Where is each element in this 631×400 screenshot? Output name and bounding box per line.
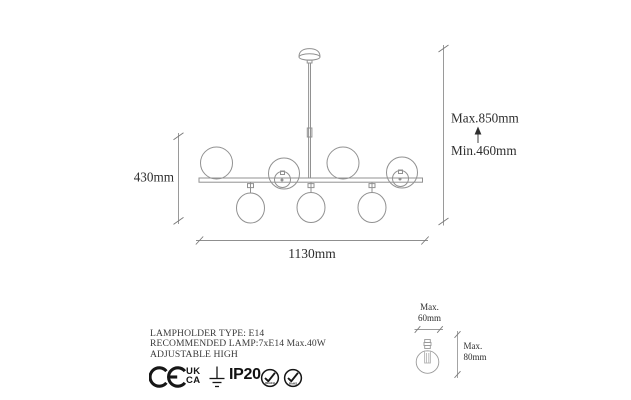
bulb-width-value: 60mm bbox=[418, 313, 441, 323]
ce-mark-icon bbox=[149, 364, 187, 390]
spec-value: 7xE14 Max.40W bbox=[259, 338, 326, 349]
globe-top-4 bbox=[387, 157, 418, 188]
suspension-rod bbox=[307, 63, 312, 178]
dimension-annotations: 430mm Max.850mm Min.460mm 1130mm bbox=[134, 45, 520, 261]
dim-hanging-height: Max.850mm Min.460mm bbox=[439, 45, 520, 226]
spec-text-block: LAMPHOLDER TYPE: E14 RECOMMENDED LAMP:7x… bbox=[150, 329, 326, 360]
dim-width-label: 1130mm bbox=[288, 246, 336, 261]
globe-top-2 bbox=[269, 158, 300, 189]
ukca-mark-icon: UK CA bbox=[186, 367, 201, 385]
globe-bottom-2 bbox=[297, 182, 325, 222]
dim-min-label: Min.460mm bbox=[451, 143, 517, 158]
rohs-badge-label: RoHS bbox=[289, 381, 297, 385]
bulb-height-value: 80mm bbox=[464, 352, 487, 362]
dim-height-label: 430mm bbox=[134, 170, 175, 185]
bulb-height-dim-line bbox=[455, 331, 461, 378]
reach-badge-icon: REACH bbox=[260, 368, 280, 388]
ukca-bottom: CA bbox=[186, 376, 201, 385]
spec-label: ADJUSTABLE HIGH bbox=[150, 350, 238, 360]
dim-fixture-width: 1130mm bbox=[196, 237, 429, 262]
globe-top-3 bbox=[327, 147, 359, 179]
rohs-badge-icon: RoHS bbox=[283, 368, 303, 388]
earth-ground-icon bbox=[208, 365, 226, 391]
globe-bottom-1 bbox=[237, 182, 265, 223]
check-icon bbox=[265, 372, 275, 380]
spec-row-adjustable: ADJUSTABLE HIGH bbox=[150, 350, 326, 360]
dim-max-label: Max.850mm bbox=[451, 111, 520, 126]
bulb-height-label: Max. bbox=[464, 341, 483, 351]
up-arrow-icon bbox=[475, 127, 482, 144]
check-icon bbox=[288, 372, 298, 380]
dim-fixture-height: 430mm bbox=[134, 133, 184, 225]
bulb-size-diagram: Max. 60mm Max. 80mm bbox=[415, 302, 487, 378]
bulb-width-dim-line bbox=[415, 326, 444, 333]
technical-drawing-page: 430mm Max.850mm Min.460mm 1130mm bbox=[0, 0, 631, 400]
globe-bottom-3 bbox=[358, 182, 386, 222]
chandelier-drawing bbox=[199, 49, 423, 223]
spec-value: : E14 bbox=[243, 328, 264, 339]
certification-marks-row: UK CA IP20 REACH RoHS bbox=[149, 363, 319, 395]
reach-badge-label: REACH bbox=[265, 381, 275, 385]
globe-top-1 bbox=[201, 147, 233, 179]
bulb-width-label: Max. bbox=[420, 302, 439, 312]
ceiling-canopy bbox=[299, 49, 320, 63]
light-bulb-icon bbox=[416, 340, 439, 374]
ip-rating-label: IP20 bbox=[229, 366, 261, 384]
